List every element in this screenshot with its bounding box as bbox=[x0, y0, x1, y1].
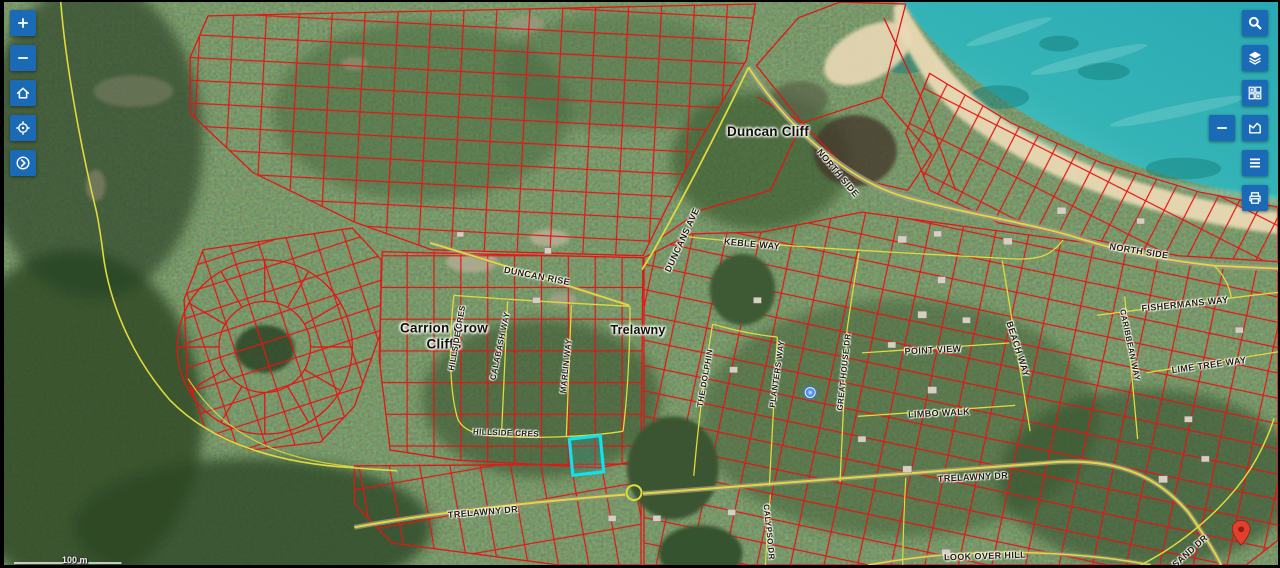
minus-icon bbox=[1214, 120, 1230, 136]
map-controls-left bbox=[10, 10, 36, 176]
map-controls-right bbox=[1242, 10, 1268, 211]
home-icon bbox=[15, 85, 31, 101]
collapse-widget-button[interactable] bbox=[1209, 115, 1235, 141]
layers-icon bbox=[1247, 50, 1263, 66]
home-extent-button[interactable] bbox=[10, 80, 36, 106]
search-icon bbox=[1247, 15, 1263, 31]
gis-map-viewer: Duncan Cliff Carrion Crow Cliffs Trelawn… bbox=[0, 0, 1280, 568]
expand-panel-button[interactable] bbox=[10, 150, 36, 176]
legend-list-icon bbox=[1247, 155, 1263, 171]
layers-button[interactable] bbox=[1242, 45, 1268, 71]
print-icon bbox=[1247, 190, 1263, 206]
highlighted-parcel[interactable] bbox=[569, 436, 603, 476]
zoom-out-button[interactable] bbox=[10, 45, 36, 71]
measure-icon bbox=[1247, 120, 1263, 136]
chevron-right-circle-icon bbox=[15, 155, 31, 171]
my-location-button[interactable] bbox=[10, 115, 36, 141]
measurement-button[interactable] bbox=[1242, 115, 1268, 141]
locate-icon bbox=[15, 120, 31, 136]
map-canvas[interactable] bbox=[4, 2, 1278, 565]
print-button[interactable] bbox=[1242, 185, 1268, 211]
minus-icon bbox=[15, 50, 31, 66]
legend-button[interactable] bbox=[1242, 150, 1268, 176]
zoom-in-button[interactable] bbox=[10, 10, 36, 36]
basemap-gallery-button[interactable] bbox=[1242, 80, 1268, 106]
search-button[interactable] bbox=[1242, 10, 1268, 36]
gps-location-dot bbox=[802, 385, 818, 401]
plus-icon bbox=[15, 15, 31, 31]
basemap-gallery-icon bbox=[1247, 85, 1263, 101]
satellite-basemap bbox=[4, 2, 1278, 565]
